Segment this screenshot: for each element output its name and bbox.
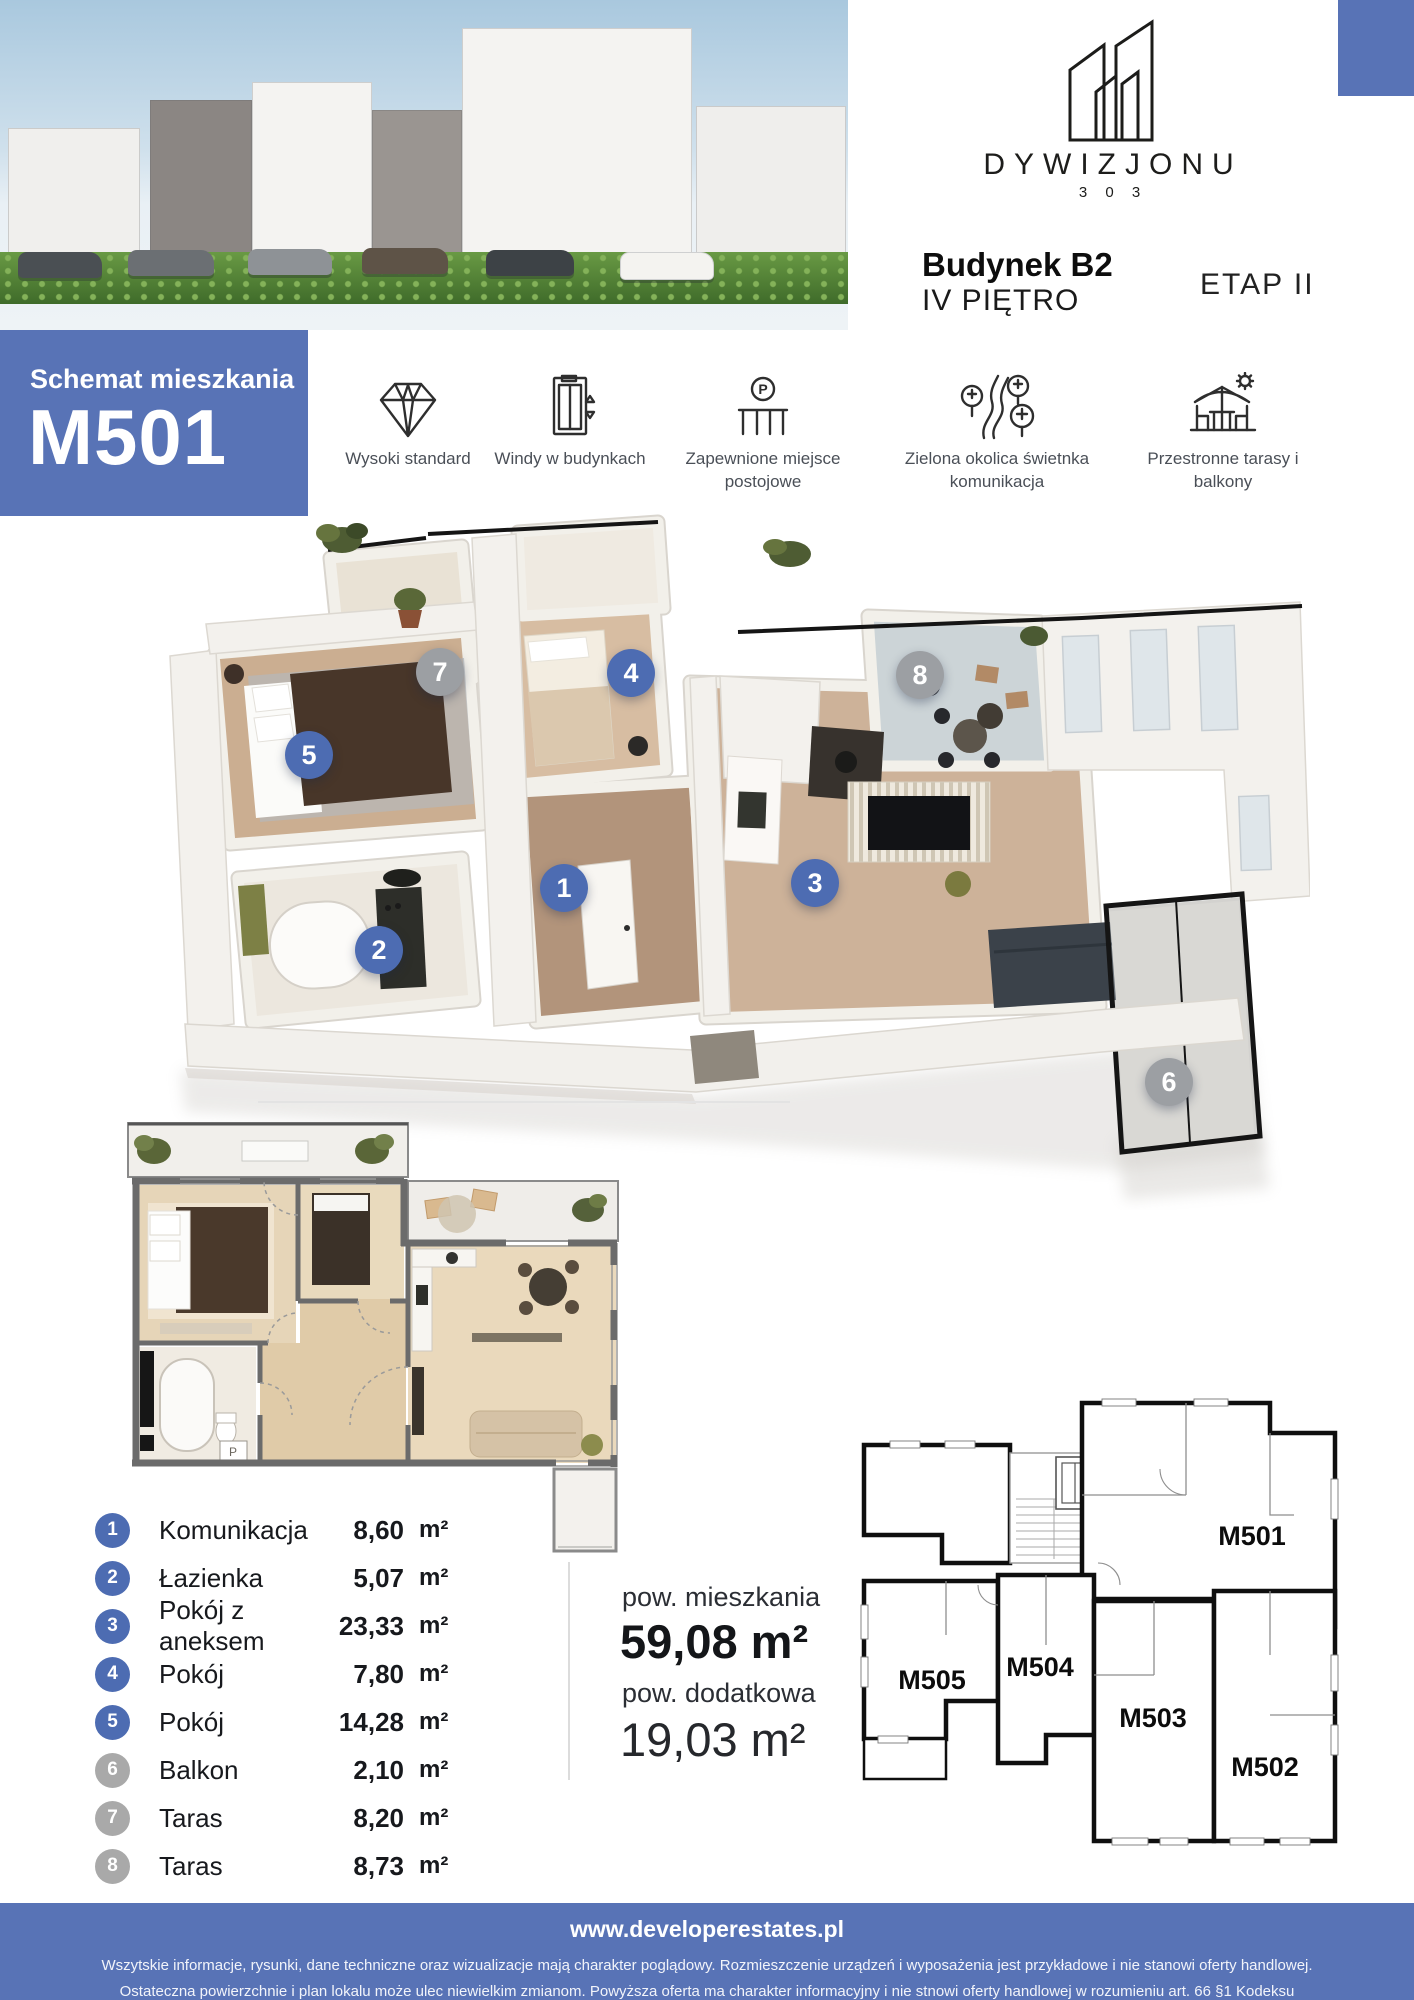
photo-car: [18, 252, 102, 278]
elevator-icon: [468, 354, 672, 442]
main-area-value: 59,08 m²: [620, 1614, 808, 1669]
room-number-badge: 7: [95, 1801, 130, 1836]
room-name: Pokój z aneksem: [159, 1595, 328, 1657]
room-name: Komunikacja: [159, 1515, 328, 1546]
2d-floorplan: P: [120, 1115, 630, 1560]
photo-building: [8, 128, 140, 262]
unit-label-m504: M504: [1006, 1652, 1074, 1682]
unit-label-m501: M501: [1218, 1521, 1286, 1551]
room-number-badge: 5: [95, 1705, 130, 1740]
floor-overview-plan: M501 M502 M503 M504 M505: [850, 1395, 1350, 1850]
plan-marker-4: 4: [607, 649, 655, 697]
plan-marker-3: 3: [791, 859, 839, 907]
washer-label: P: [229, 1445, 237, 1459]
room-unit: m²: [419, 1612, 463, 1640]
header-brand-area: DYWIZJONU 3 0 3 Budynek B2 IV PIĘTRO ETA…: [848, 0, 1414, 330]
room-number-badge: 1: [95, 1513, 130, 1548]
photo-building: [462, 28, 692, 264]
room-name: Taras: [159, 1803, 328, 1834]
3d-floorplan-render: [130, 440, 1310, 1210]
brand-logo-icon: [1038, 18, 1188, 148]
room-unit: m²: [419, 1660, 463, 1688]
website-link[interactable]: www.developerestates.pl: [0, 1916, 1414, 1943]
parking-icon: P: [661, 354, 865, 442]
flyer-page: DYWIZJONU 3 0 3 Budynek B2 IV PIĘTRO ETA…: [0, 0, 1414, 2000]
room-area: 8,73: [328, 1851, 404, 1882]
terrace-icon: [1121, 354, 1325, 442]
room-area: 14,28: [328, 1707, 404, 1738]
room-number-badge: 2: [95, 1561, 130, 1596]
plan-marker-1: 1: [540, 864, 588, 912]
plan-marker-7: 7: [416, 648, 464, 696]
photo-building: [150, 100, 252, 264]
room-area: 2,10: [328, 1755, 404, 1786]
room-area: 23,33: [328, 1611, 404, 1642]
photo-car: [620, 252, 714, 280]
extra-area-value: 19,03 m²: [620, 1712, 805, 1767]
room-area: 7,80: [328, 1659, 404, 1690]
room-name: Balkon: [159, 1755, 328, 1786]
disclaimer-line-2: Ostateczna powierzchnie i plan lokalu mo…: [120, 1983, 1295, 2000]
room-row: 4 Pokój 7,80 m²: [95, 1654, 463, 1694]
disclaimer-line-1: Wszytskie informacje, rysunki, dane tech…: [101, 1957, 1312, 1974]
nature-road-icon: [895, 354, 1099, 442]
room-unit: m²: [419, 1756, 463, 1784]
plan-marker-5: 5: [285, 731, 333, 779]
summary-divider: [568, 1562, 570, 1780]
unit-label-m505: M505: [898, 1665, 966, 1695]
building-floor: IV PIĘTRO: [922, 284, 1079, 318]
room-area: 8,20: [328, 1803, 404, 1834]
room-unit: m²: [419, 1708, 463, 1736]
room-row: 2 Łazienka 5,07 m²: [95, 1558, 463, 1598]
room-name: Taras: [159, 1851, 328, 1882]
room-name: Łazienka: [159, 1563, 328, 1594]
room-number-badge: 4: [95, 1657, 130, 1692]
room-unit: m²: [419, 1564, 463, 1592]
room-row: 7 Taras 8,20 m²: [95, 1798, 463, 1838]
photo-building: [696, 106, 846, 264]
unit-label-m503: M503: [1119, 1703, 1187, 1733]
photo-car: [486, 250, 574, 276]
room-number-badge: 3: [95, 1609, 130, 1644]
room-name: Pokój: [159, 1707, 328, 1738]
extra-area-label: pow. dodatkowa: [622, 1678, 816, 1709]
svg-text:P: P: [758, 381, 767, 397]
schematic-kicker: Schemat mieszkania: [30, 364, 294, 395]
room-name: Pokój: [159, 1659, 328, 1690]
brand-number: 3 0 3: [848, 184, 1378, 201]
unit-label-m502: M502: [1231, 1752, 1299, 1782]
stage-label: ETAP II: [1200, 268, 1315, 302]
room-row: 1 Komunikacja 8,60 m²: [95, 1510, 463, 1550]
photo-building: [372, 110, 462, 264]
room-row: 6 Balkon 2,10 m²: [95, 1750, 463, 1790]
room-number-badge: 6: [95, 1753, 130, 1788]
brand-name: DYWIZJONU: [848, 148, 1378, 182]
building-title: Budynek B2: [922, 246, 1113, 284]
main-area-label: pow. mieszkania: [622, 1582, 820, 1613]
photo-building: [252, 82, 372, 264]
corner-accent-square: [1338, 0, 1414, 96]
room-unit: m²: [419, 1804, 463, 1832]
plan-marker-8: 8: [896, 651, 944, 699]
room-unit: m²: [419, 1852, 463, 1880]
room-area: 8,60: [328, 1515, 404, 1546]
plan-marker-2: 2: [355, 926, 403, 974]
plan-marker-6: 6: [1145, 1058, 1193, 1106]
footer: www.developerestates.pl Wszytskie inform…: [0, 1903, 1414, 2000]
room-number-badge: 8: [95, 1849, 130, 1884]
room-row: 8 Taras 8,73 m²: [95, 1846, 463, 1886]
room-row: 3 Pokój z aneksem 23,33 m²: [95, 1606, 463, 1646]
photo-car: [362, 248, 448, 274]
room-row: 5 Pokój 14,28 m²: [95, 1702, 463, 1742]
photo-car: [128, 250, 214, 276]
building-photo: [0, 0, 848, 330]
section-divider: [258, 1101, 790, 1103]
room-area: 5,07: [328, 1563, 404, 1594]
photo-car: [248, 249, 332, 275]
room-unit: m²: [419, 1516, 463, 1544]
